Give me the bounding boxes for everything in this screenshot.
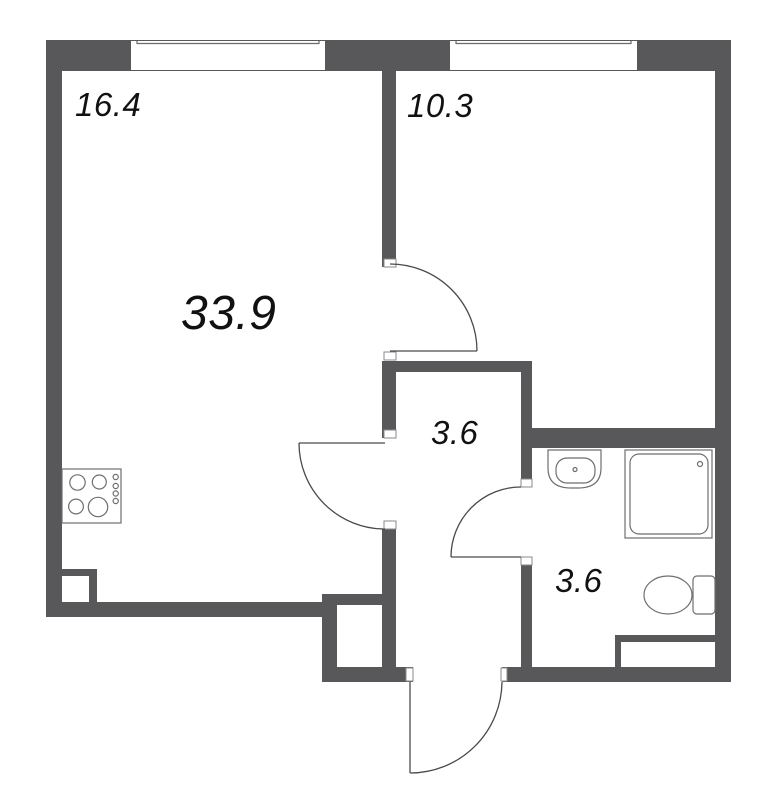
wall-hallway-left-lower	[382, 529, 396, 682]
knob	[113, 483, 118, 488]
faucet-dot	[573, 468, 577, 472]
wall-bath-duct-top	[615, 635, 715, 642]
room-door-swing-arc-icon	[390, 264, 477, 351]
wall-bottom-left	[322, 667, 413, 682]
jamb-cap	[406, 668, 413, 681]
room-area-label-main: 33.9	[181, 287, 276, 340]
wall-right	[715, 40, 731, 682]
knob	[113, 474, 118, 479]
burner	[88, 497, 107, 516]
wall-corner-duct-right	[89, 569, 97, 602]
window-opening	[131, 41, 325, 70]
washbasin-icon	[548, 450, 601, 488]
jamb-cap	[384, 430, 396, 438]
jamb-cap	[501, 668, 507, 681]
window-opening	[450, 41, 637, 70]
wall-bath-duct-left	[615, 635, 621, 682]
jamb-cap	[384, 352, 396, 360]
jamb-cap	[384, 521, 396, 529]
door-arc	[390, 264, 477, 351]
toilet-tank	[693, 576, 715, 614]
knob	[113, 498, 118, 503]
room-labels: 16.4 10.3 33.9 3.6 3.6	[75, 86, 603, 599]
shower-tray-icon	[625, 450, 712, 538]
burner	[69, 499, 84, 514]
burner	[92, 475, 106, 489]
wall-hallway-right-upper	[521, 361, 532, 487]
toilet-bowl	[644, 576, 692, 614]
wall-bathroom-top	[521, 428, 715, 448]
door-arc	[451, 487, 521, 557]
jamb-cap	[521, 557, 532, 565]
room-area-label-hallway: 3.6	[431, 414, 479, 451]
living-hallway-door-swing-arc-icon	[299, 443, 385, 529]
window-top-right-icon	[450, 41, 637, 70]
wall-living-bottom	[46, 602, 337, 617]
entrance-door-swing-arc-icon	[410, 682, 502, 773]
bathroom-door-swing-arc-icon	[451, 487, 521, 557]
shower-drain-dot	[698, 462, 703, 467]
wall-niche-top	[322, 594, 396, 605]
door-arc	[299, 443, 385, 529]
walls	[46, 40, 731, 682]
cooktop-icon	[62, 469, 121, 523]
wall-hallway-left-upper	[382, 361, 396, 438]
wall-hallway-top	[382, 361, 532, 372]
wall-left	[46, 40, 62, 617]
door-jamb-caps	[384, 259, 532, 681]
window-top-left-icon	[131, 41, 325, 70]
wall-hallway-right-lower	[521, 557, 532, 682]
wall-between-rooms	[382, 71, 396, 267]
room-area-label-bathroom: 3.6	[555, 562, 603, 599]
shower-inner	[630, 454, 708, 534]
toilet-icon	[644, 576, 715, 614]
floor-plan-canvas: 16.4 10.3 33.9 3.6 3.6	[0, 0, 782, 800]
door-arc	[410, 682, 502, 773]
doors	[299, 264, 521, 773]
knob	[113, 491, 118, 496]
burner	[70, 475, 85, 490]
floor-plan: 16.4 10.3 33.9 3.6 3.6	[0, 0, 782, 800]
jamb-cap	[521, 479, 532, 487]
room-area-label-top-left: 16.4	[75, 86, 141, 123]
room-area-label-top-right: 10.3	[407, 87, 473, 124]
jamb-cap	[384, 259, 396, 267]
